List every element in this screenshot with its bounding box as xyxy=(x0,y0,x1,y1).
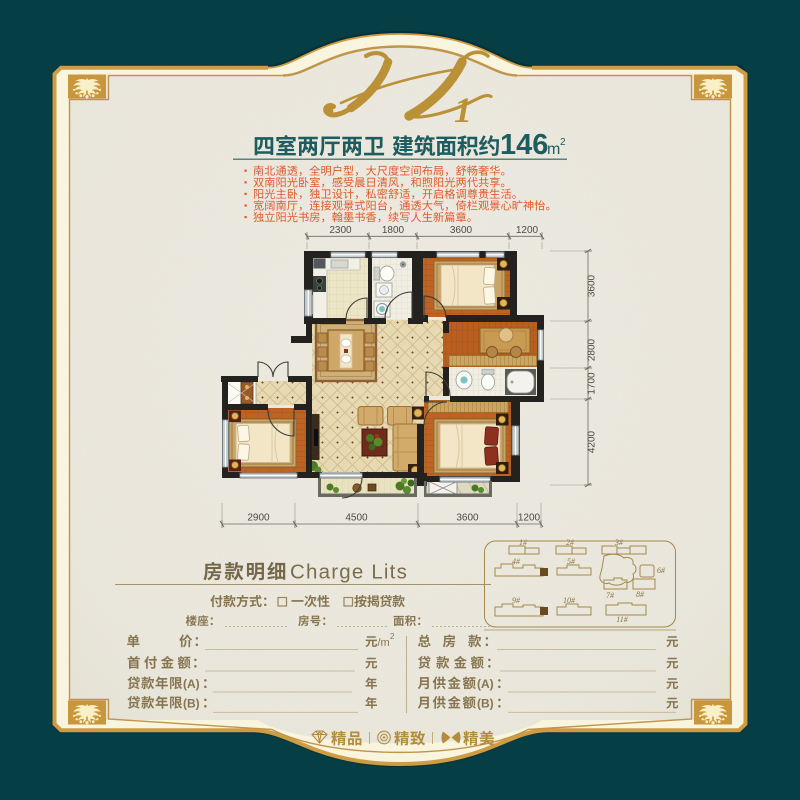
svg-text:(A): (A) xyxy=(477,677,494,691)
svg-text:4500: 4500 xyxy=(345,513,368,524)
svg-text:6#: 6# xyxy=(657,566,666,575)
svg-text:Charge Lits: Charge Lits xyxy=(290,561,408,584)
svg-text:4200: 4200 xyxy=(587,430,598,453)
svg-text:(B): (B) xyxy=(477,697,494,711)
svg-text:2#: 2# xyxy=(566,538,575,547)
svg-text:3600: 3600 xyxy=(450,225,473,236)
svg-text:(B): (B) xyxy=(183,697,200,711)
svg-text:1200: 1200 xyxy=(516,225,539,236)
svg-text:1800: 1800 xyxy=(382,225,405,236)
svg-text:3600: 3600 xyxy=(456,513,479,524)
svg-text:2800: 2800 xyxy=(587,338,598,361)
svg-text:1: 1 xyxy=(454,90,472,130)
svg-text:2: 2 xyxy=(390,632,395,641)
svg-text:1200: 1200 xyxy=(518,513,541,524)
svg-text:/m: /m xyxy=(378,637,390,649)
svg-text:2300: 2300 xyxy=(329,225,352,236)
svg-text:9#: 9# xyxy=(512,596,521,605)
svg-text:7#: 7# xyxy=(606,591,615,600)
svg-text:m: m xyxy=(547,141,560,158)
svg-text:11#: 11# xyxy=(616,615,628,624)
svg-text:(A): (A) xyxy=(183,677,200,691)
svg-text:2900: 2900 xyxy=(247,513,270,524)
svg-text:5#: 5# xyxy=(567,557,576,566)
svg-text:3#: 3# xyxy=(614,538,624,547)
svg-text:4#: 4# xyxy=(512,557,521,566)
svg-text:8#: 8# xyxy=(636,590,645,599)
svg-text:1700: 1700 xyxy=(587,372,598,395)
svg-text:1#: 1# xyxy=(519,538,528,547)
svg-text:2: 2 xyxy=(560,137,566,148)
svg-text:10#: 10# xyxy=(563,596,576,605)
svg-text:3600: 3600 xyxy=(587,274,598,297)
svg-text:146: 146 xyxy=(500,129,548,161)
